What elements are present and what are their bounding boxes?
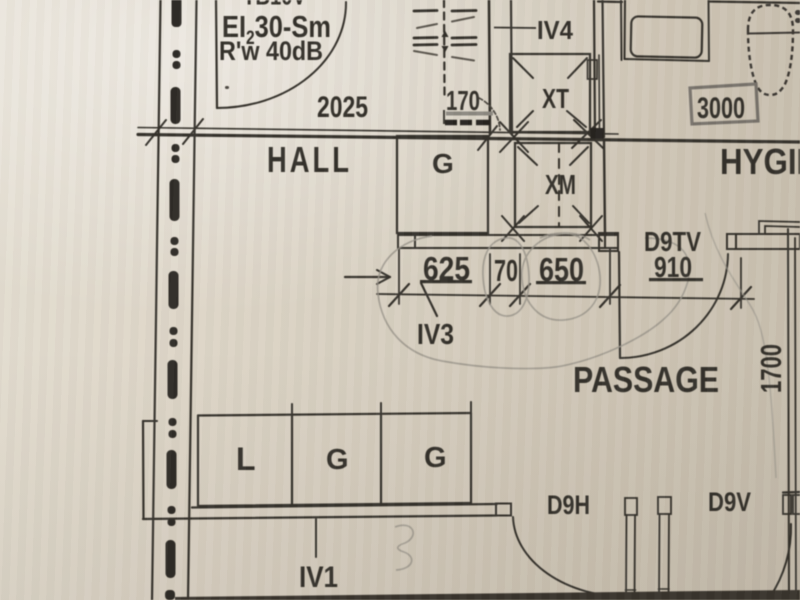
svg-text:D9V: D9V (708, 487, 751, 517)
svg-text:G: G (424, 442, 447, 474)
svg-text:XT: XT (542, 83, 569, 114)
svg-text:IV4: IV4 (537, 15, 573, 45)
svg-text:XM: XM (545, 169, 576, 200)
svg-text:G: G (326, 444, 349, 476)
svg-text:G: G (432, 148, 454, 179)
svg-text:2025: 2025 (317, 91, 368, 124)
svg-text:R'w 40dB: R'w 40dB (219, 36, 323, 66)
svg-text:PASSAGE: PASSAGE (573, 359, 719, 400)
svg-text:1700: 1700 (756, 344, 788, 393)
svg-text:D9H: D9H (547, 490, 590, 520)
svg-text:70: 70 (494, 253, 518, 288)
svg-text:HALL: HALL (267, 139, 352, 180)
svg-text:IV3: IV3 (417, 319, 454, 351)
svg-text:170: 170 (446, 85, 480, 116)
svg-text:IV1: IV1 (299, 561, 338, 594)
svg-text:3000: 3000 (697, 92, 745, 125)
svg-text:L: L (236, 441, 256, 477)
svg-text:HYGIEN: HYGIEN (720, 141, 800, 182)
